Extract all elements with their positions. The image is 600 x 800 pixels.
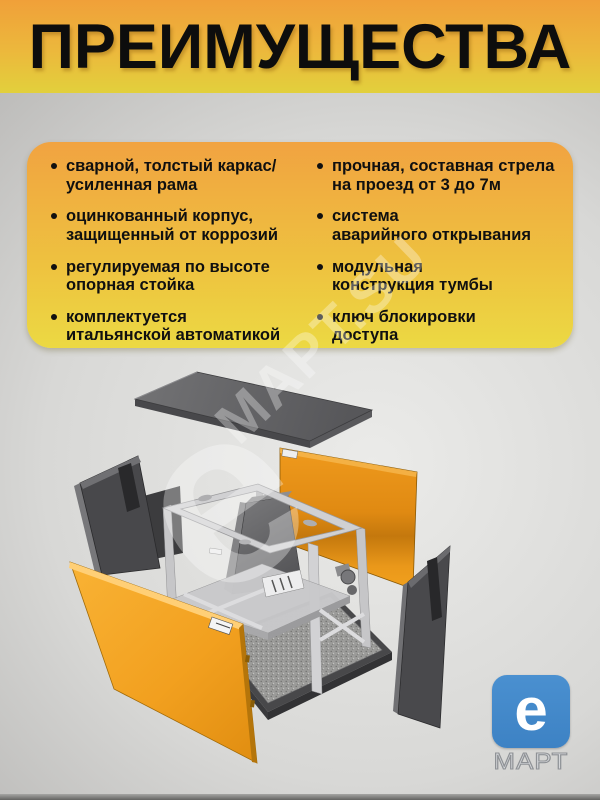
watermark-letter: е [88,355,347,642]
advantages-column-right: прочная, составная стрела на проезд от 3… [317,157,559,348]
side-panel-left [74,456,160,577]
list-item: прочная, составная стрела на проезд от 3… [317,157,559,194]
brand-logo: е МАРТ [492,675,570,773]
bullet-dot [51,264,57,270]
advantage-text: сварной, толстый каркас/ усиленная рама [66,157,276,194]
bullet-dot [51,314,57,320]
bullet-dot [51,163,57,169]
top-cover [135,372,372,448]
bottom-edge-strip [0,794,600,800]
advantage-text: система аварийного открывания [332,207,531,244]
advantages-card: сварной, толстый каркас/ усиленная рама … [27,142,573,348]
list-item: сварной, толстый каркас/ усиленная рама [51,157,293,194]
advantage-text: комплектуется итальянской автоматикой [66,308,280,345]
advantages-list-left: сварной, толстый каркас/ усиленная рама … [51,157,293,345]
advantage-text: прочная, составная стрела на проезд от 3… [332,157,554,194]
advantage-text: оцинкованный корпус, защищенный от корро… [66,207,278,244]
advantages-column-left: сварной, толстый каркас/ усиленная рама … [51,157,293,348]
infographic-page: ПРЕИМУЩЕСТВА сварной, толстый каркас/ ус… [0,0,600,800]
bullet-dot [317,314,323,320]
list-item: модульная конструкция тумбы [317,258,559,295]
list-item: система аварийного открывания [317,207,559,244]
bullet-dot [51,213,57,219]
bullet-dot [317,163,323,169]
rear-panel [280,448,417,589]
front-panel [69,562,257,763]
logo-letter: е [514,680,547,740]
frame-with-drive [163,484,392,720]
list-item: регулируемая по высоте опорная стойка [51,258,293,295]
list-item: оцинкованный корпус, защищенный от корро… [51,207,293,244]
list-item: ключ блокировки доступа [317,308,559,345]
bullet-dot [317,213,323,219]
advantage-text: ключ блокировки доступа [332,308,476,345]
list-item: комплектуется итальянской автоматикой [51,308,293,345]
back-wall-panel [140,486,183,561]
side-panel-right [393,546,450,728]
bullet-dot [317,264,323,270]
logo-caption: МАРТ [487,750,574,773]
advantage-text: регулируемая по высоте опорная стойка [66,258,270,295]
advantages-list-right: прочная, составная стрела на проезд от 3… [317,157,559,345]
header-band: ПРЕИМУЩЕСТВА [0,0,600,93]
advantage-text: модульная конструкция тумбы [332,258,493,295]
page-title: ПРЕИМУЩЕСТВА [29,11,572,83]
logo-badge: е [492,675,570,748]
